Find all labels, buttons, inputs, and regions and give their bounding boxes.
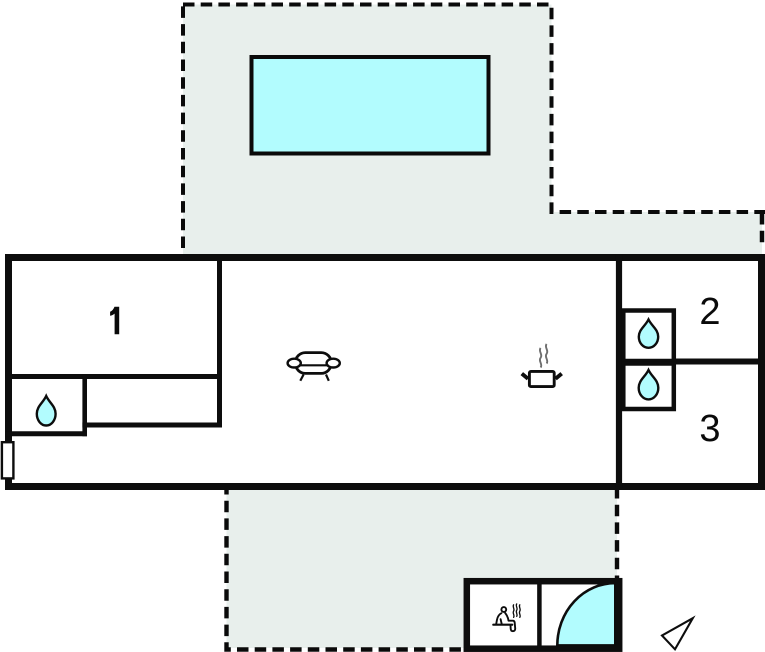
svg-text:3: 3	[699, 408, 720, 450]
svg-text:2: 2	[699, 291, 720, 333]
